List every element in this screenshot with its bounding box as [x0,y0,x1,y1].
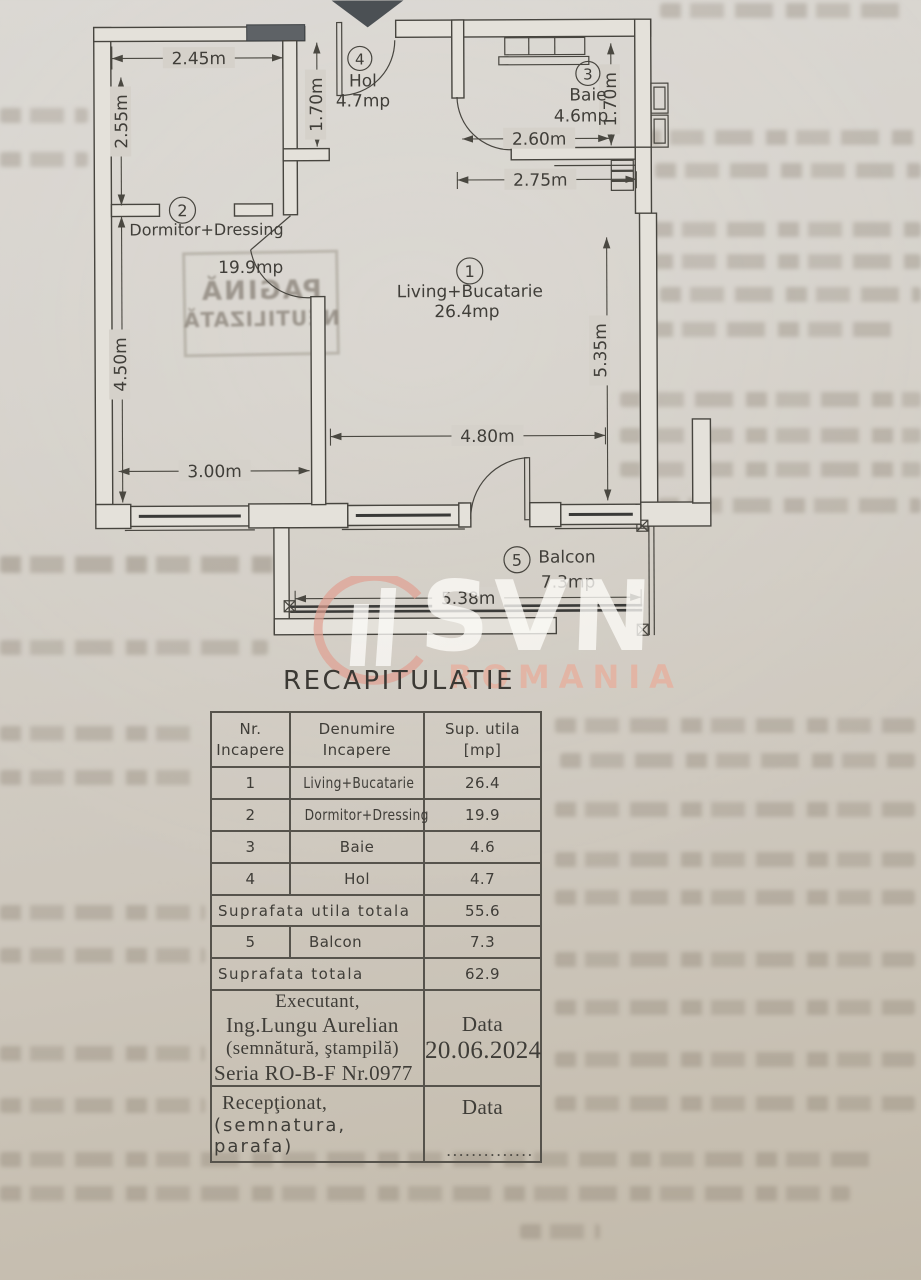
date-label: Data [425,1012,540,1037]
total-label: Suprafata totala [211,958,424,990]
executant-signature-note: (semnătură, ştampilă) [212,1038,423,1060]
bleedthrough-line [555,718,915,733]
room-area: 7.3mp [541,572,595,592]
bleedthrough-line [555,802,915,817]
balcony-walls [274,520,654,637]
header-line: Incapere [291,740,423,760]
dim-label: 4.50m [111,337,131,392]
bleedthrough-line [0,770,200,785]
room-label-balcon: 5 Balcon 7.3mp [504,546,596,592]
signature-dots: .............. [447,1141,535,1161]
room-number: 3 [583,65,593,83]
bleedthrough-line [555,952,915,967]
header-line: Nr. [212,719,289,739]
date-label: Data [425,1095,540,1120]
receptionat-signature-note: (semnatura, parafa) [212,1115,423,1157]
executant-series: Seria RO-B-F Nr.0977 [212,1061,423,1086]
subtotal-row: Suprafata utila totala 55.6 [211,895,541,926]
recap-table: Nr. Incapere Denumire Incapere Sup. util… [210,711,542,1163]
bleedthrough-line [555,1096,915,1111]
room-area: 26.4mp [434,302,499,322]
executant-block: Executant, Ing.Lungu Aurelian (semnătură… [211,990,424,1086]
table-row: 4 Hol 4.7 [211,863,541,895]
bleedthrough-line [0,1098,205,1113]
bleedthrough-line [0,726,200,741]
bleedthrough-line [0,1046,205,1061]
room-area: 4.6mp [554,106,608,126]
header-line: Denumire [291,719,423,739]
cell-name-text: Dormitor+Dressing [305,806,429,824]
cell-nr: 4 [211,863,290,895]
bleedthrough-line [555,852,915,867]
room-label-living: 1 Living+Bucatarie 26.4mp [397,258,544,323]
bleedthrough-line [0,1186,850,1201]
header-line: Incapere [212,740,289,760]
cell-name-text: Living+Bucatarie [303,774,414,792]
cell-nr: 3 [211,831,290,863]
dim-label: 4.80m [460,427,515,447]
floor-plan: 2.45m 2.55m 4.50m 1.70m 1.70m 2.60m 2.75… [0,0,921,662]
executant-row: Executant, Ing.Lungu Aurelian (semnătură… [211,990,541,1086]
total-row: Suprafata totala 62.9 [211,958,541,990]
cell-name: Balcon [290,926,424,958]
room-number: 1 [465,262,475,281]
executant-name: Ing.Lungu Aurelian [212,1013,423,1038]
table-row: 3 Baie 4.6 [211,831,541,863]
header-line: [mp] [425,740,540,760]
room-number: 5 [512,551,522,570]
cell-name: Living+Bucatarie [290,767,424,799]
cell-name: Baie [290,831,424,863]
room-area: 4.7mp [336,91,390,111]
bleedthrough-line [520,1224,600,1239]
cell-area: 4.7 [424,863,541,895]
north-arrow-icon [332,0,404,27]
recap-title: RECAPITULATIE [283,666,515,696]
room-name: Baie [569,85,606,105]
windows [125,504,647,530]
dim-label: 2.55m [112,94,132,149]
dim-label: 2.45m [172,49,227,69]
room-label-hol: 4 Hol 4.7mp [336,46,391,111]
header-line: Sup. utila [425,719,540,739]
cell-nr: 2 [211,799,290,831]
receptionat-date-cell: Data .............. [424,1086,541,1162]
bleedthrough-line [0,905,205,920]
receptionat-title: Recepţionat, [212,1092,423,1115]
bleedthrough-line [555,1052,915,1067]
table-row: 5 Balcon 7.3 [211,926,541,958]
cell-area: 7.3 [424,926,541,958]
table-header-row: Nr. Incapere Denumire Incapere Sup. util… [211,712,541,767]
header-denumire: Denumire Incapere [290,712,424,767]
subtotal-value: 55.6 [424,895,541,926]
room-name: Balcon [538,547,595,567]
cell-nr: 5 [211,926,290,958]
room-number: 2 [177,201,187,220]
dim-label: 5.35m [591,323,611,378]
receptionat-row: Recepţionat, (semnatura, parafa) Data ..… [211,1086,541,1162]
dim-label: 2.75m [513,171,568,191]
dim-label: 5.38m [441,589,496,609]
room-label-baie: 3 Baie 4.6mp [554,61,609,126]
date-value: 20.06.2024 [425,1037,540,1065]
cell-name: Hol [290,863,424,895]
header-sup-utila: Sup. utila [mp] [424,712,541,767]
dim-label: 3.00m [187,462,242,482]
receptionat-block: Recepţionat, (semnatura, parafa) [211,1086,424,1162]
total-value: 62.9 [424,958,541,990]
cell-name: Dormitor+Dressing [290,799,424,831]
subtotal-label: Suprafata utila totala [211,895,424,926]
bleedthrough-line [560,753,915,768]
cell-nr: 1 [211,767,290,799]
cell-area: 4.6 [424,831,541,863]
dim-label: 2.60m [512,130,567,150]
header-nr-incapere: Nr. Incapere [211,712,290,767]
executant-date-cell: Data 20.06.2024 [424,990,541,1086]
table-row: 1 Living+Bucatarie 26.4 [211,767,541,799]
cell-area: 26.4 [424,767,541,799]
room-number: 4 [355,50,365,68]
cell-area: 19.9 [424,799,541,831]
bleedthrough-line [555,890,915,905]
room-name: Living+Bucatarie [397,282,543,303]
executant-title: Executant, [212,991,423,1013]
room-name: Hol [349,71,377,91]
bleedthrough-line [555,1000,915,1015]
room-area: 19.9mp [218,258,283,278]
table-row: 2 Dormitor+Dressing 19.9 [211,799,541,831]
room-name: Dormitor+Dressing [129,220,283,240]
bleedthrough-line [0,948,205,963]
dim-label: 1.70m [307,77,327,132]
